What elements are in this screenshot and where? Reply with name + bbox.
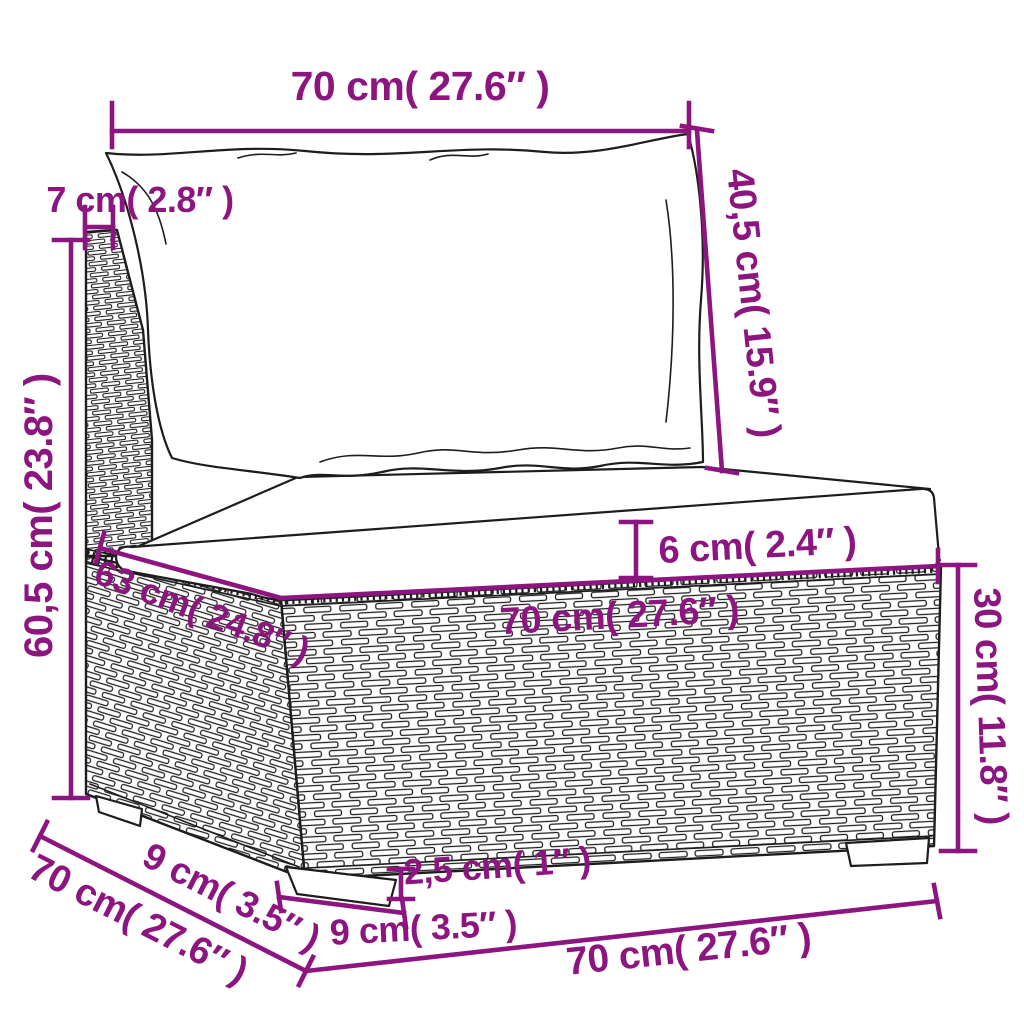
dim-base-width-label: 70 cm( 27.6″ ) bbox=[564, 915, 813, 983]
dim-leg-width-label: 9 cm( 3.5″ ) bbox=[329, 902, 518, 953]
dim-base-height: 30 cm( 11.8″ ) bbox=[941, 565, 1015, 851]
dim-back-cushion-height-label: 40,5 cm( 15.9″ ) bbox=[718, 167, 788, 440]
front-right-leg bbox=[846, 838, 929, 866]
dim-back-cushion-width: 70 cm( 27.6″ ) bbox=[112, 63, 689, 147]
dim-back-post-depth-label: 7 cm( 2.8″ ) bbox=[46, 179, 233, 220]
sofa-dimension-drawing: 70 cm( 27.6″ ) 7 cm( 2.8″ ) 60,5 cm( 23.… bbox=[0, 0, 1024, 1024]
dim-total-height-label: 60,5 cm( 23.8″ ) bbox=[17, 373, 61, 658]
sofa-artwork bbox=[86, 134, 941, 906]
dim-base-height-label: 30 cm( 11.8″ ) bbox=[965, 587, 1015, 826]
product-dimension-diagram: 70 cm( 27.6″ ) 7 cm( 2.8″ ) 60,5 cm( 23.… bbox=[0, 0, 1024, 1024]
dim-back-cushion-width-label: 70 cm( 27.6″ ) bbox=[291, 63, 550, 109]
dim-total-height: 60,5 cm( 23.8″ ) bbox=[17, 240, 88, 798]
